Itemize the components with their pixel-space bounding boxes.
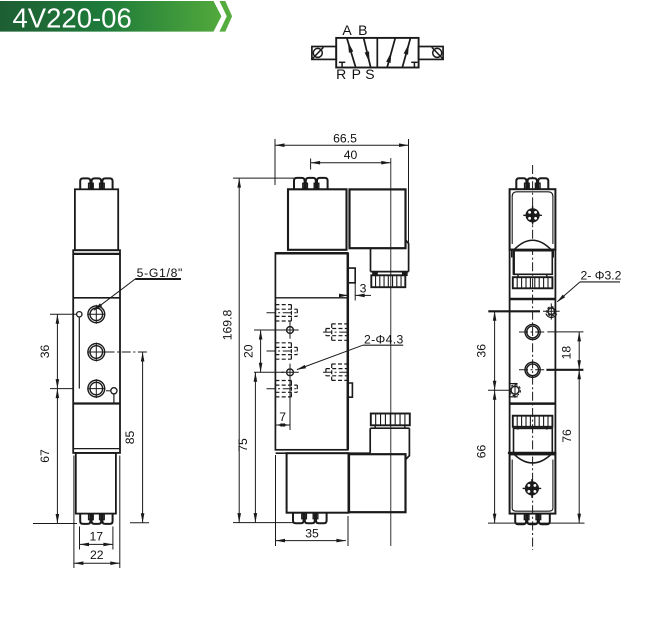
- svg-text:67: 67: [38, 449, 52, 463]
- svg-text:A: A: [342, 22, 352, 38]
- svg-text:22: 22: [90, 548, 104, 562]
- svg-text:17: 17: [90, 529, 104, 543]
- svg-text:4V220-06: 4V220-06: [13, 2, 132, 33]
- svg-text:5-G1/8": 5-G1/8": [137, 266, 184, 280]
- svg-text:S: S: [365, 66, 374, 82]
- svg-text:2- Φ3.2: 2- Φ3.2: [581, 269, 622, 283]
- svg-text:20: 20: [241, 344, 255, 358]
- svg-text:36: 36: [474, 344, 488, 358]
- svg-text:18: 18: [559, 346, 573, 360]
- svg-text:P: P: [352, 66, 361, 82]
- svg-text:169.8: 169.8: [220, 310, 234, 341]
- svg-text:35: 35: [305, 526, 319, 540]
- svg-text:75: 75: [236, 438, 250, 452]
- svg-text:66: 66: [474, 445, 488, 459]
- svg-text:R: R: [336, 66, 346, 82]
- svg-text:76: 76: [560, 429, 574, 443]
- svg-text:66.5: 66.5: [333, 131, 357, 145]
- svg-text:3: 3: [360, 282, 367, 296]
- svg-text:7: 7: [279, 410, 286, 424]
- svg-text:B: B: [358, 22, 367, 38]
- svg-text:85: 85: [123, 431, 137, 445]
- svg-text:36: 36: [38, 345, 52, 359]
- svg-text:40: 40: [344, 148, 358, 162]
- svg-text:2-Φ4.3: 2-Φ4.3: [364, 333, 404, 347]
